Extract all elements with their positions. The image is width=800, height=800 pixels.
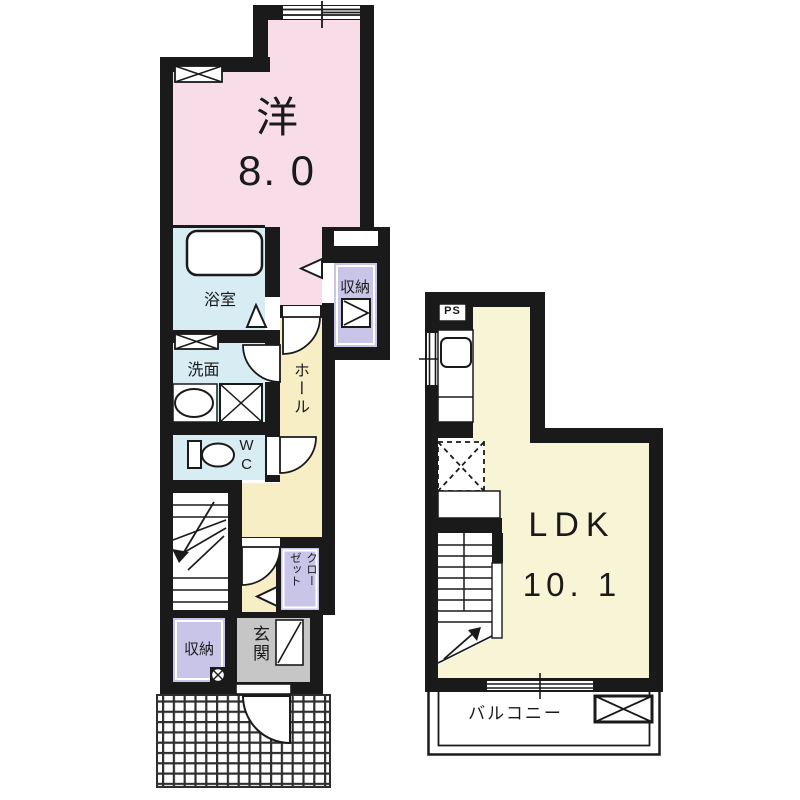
storage-upper-label: 収納	[331, 276, 379, 297]
light-icon	[210, 667, 226, 683]
hall-label: ホール	[287, 362, 311, 462]
bathroom-label: 浴室	[190, 286, 250, 310]
storage-lower-label: 収納	[173, 638, 225, 659]
porch-area	[157, 684, 330, 787]
stairs-first-floor	[172, 493, 228, 610]
western-room-size-label: 8. 0	[207, 147, 347, 195]
washer-pan-icon	[220, 384, 262, 422]
floor-plan-drawing	[0, 0, 800, 800]
sink-icon	[441, 338, 471, 367]
ldk-label: LDK	[497, 506, 647, 545]
floor-plan-page: 洋 8. 0 浴室 洗面 WC ホール 収納 クローゼット 玄関 収納 PS L…	[0, 0, 800, 800]
shoe-cabinet-icon	[276, 620, 303, 665]
closet-label: クローゼット	[283, 552, 319, 592]
entrance-label: 玄関	[247, 625, 272, 681]
washing-pan-icon	[595, 696, 652, 722]
stair-landing	[438, 491, 500, 518]
balcony-label: バルコニー	[438, 699, 593, 724]
sink-icon	[173, 384, 217, 422]
ps-label: PS	[439, 305, 466, 317]
lattice-window-icon	[175, 66, 222, 82]
shelf-icon	[342, 299, 370, 327]
lattice-window-icon	[175, 334, 218, 349]
bathtub-icon	[187, 231, 262, 275]
western-room-label: 洋	[217, 84, 337, 145]
ldk-size-label: 10. 1	[497, 566, 647, 604]
washroom-label: 洗面	[176, 356, 231, 380]
refrigerator-space-icon	[438, 442, 484, 491]
toilet-icon	[188, 441, 234, 468]
kitchen-counter	[438, 330, 473, 422]
wc-label: WC	[238, 437, 255, 479]
